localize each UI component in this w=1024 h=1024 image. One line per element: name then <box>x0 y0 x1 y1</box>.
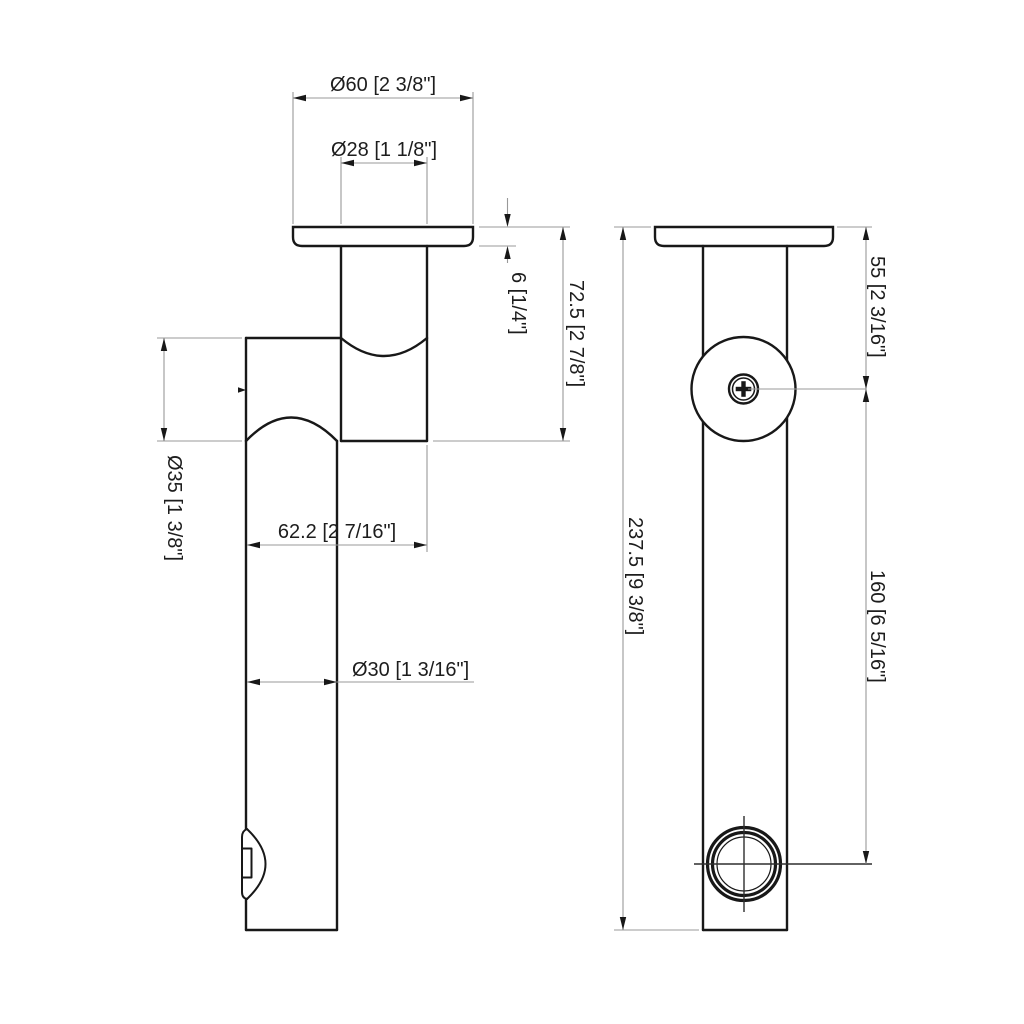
dim-label-flange-stem: Ø28 [1 1/8"] <box>331 139 437 161</box>
drawing-sheet: Ø60 [2 3/8"] Ø28 [1 1/8"] 6 [1/4"] 72.5 … <box>0 0 1024 1024</box>
dim-label-flange-thickness: 6 [1/4"] <box>507 272 529 335</box>
dim-label-flange-to-pivot: 55 [2 3/16"] <box>866 256 888 358</box>
dim-tube-diameter: Ø30 [1 3/16"] <box>247 659 474 685</box>
dim-label-tube-diameter: Ø30 [1 3/16"] <box>352 659 469 681</box>
front-tube-saddle-curve <box>246 418 337 442</box>
diverter-button <box>242 829 266 899</box>
dim-flange-thickness: 6 [1/4"] <box>479 198 529 335</box>
dim-flange-stem: Ø28 [1 1/8"] <box>331 139 437 224</box>
dim-label-flange-outer: Ø60 [2 3/8"] <box>330 74 436 96</box>
dim-label-horizontal-offset: 62.2 [2 7/16"] <box>278 521 396 543</box>
side-flange <box>655 227 833 246</box>
front-stem-saddle-curve <box>341 338 427 356</box>
dim-overall-length: 237.5 [9 3/8"] <box>614 227 699 930</box>
dim-label-drop-height: 72.5 [2 7/8"] <box>565 280 587 387</box>
front-view <box>238 227 473 930</box>
dim-label-overall-length: 237.5 [9 3/8"] <box>624 517 646 635</box>
front-flange <box>293 227 473 246</box>
dim-body-diameter: Ø35 [1 3/8"] <box>157 338 242 561</box>
dim-flange-to-pivot: 55 [2 3/16"] <box>837 227 888 389</box>
dim-label-body-diameter: Ø35 [1 3/8"] <box>163 455 185 561</box>
technical-drawing: Ø60 [2 3/8"] Ø28 [1 1/8"] 6 [1/4"] 72.5 … <box>0 0 1024 1024</box>
dim-label-pivot-to-outlet: 160 [6 5/16"] <box>866 570 888 683</box>
side-view <box>655 227 872 930</box>
dim-pivot-to-outlet: 160 [6 5/16"] <box>863 389 888 864</box>
